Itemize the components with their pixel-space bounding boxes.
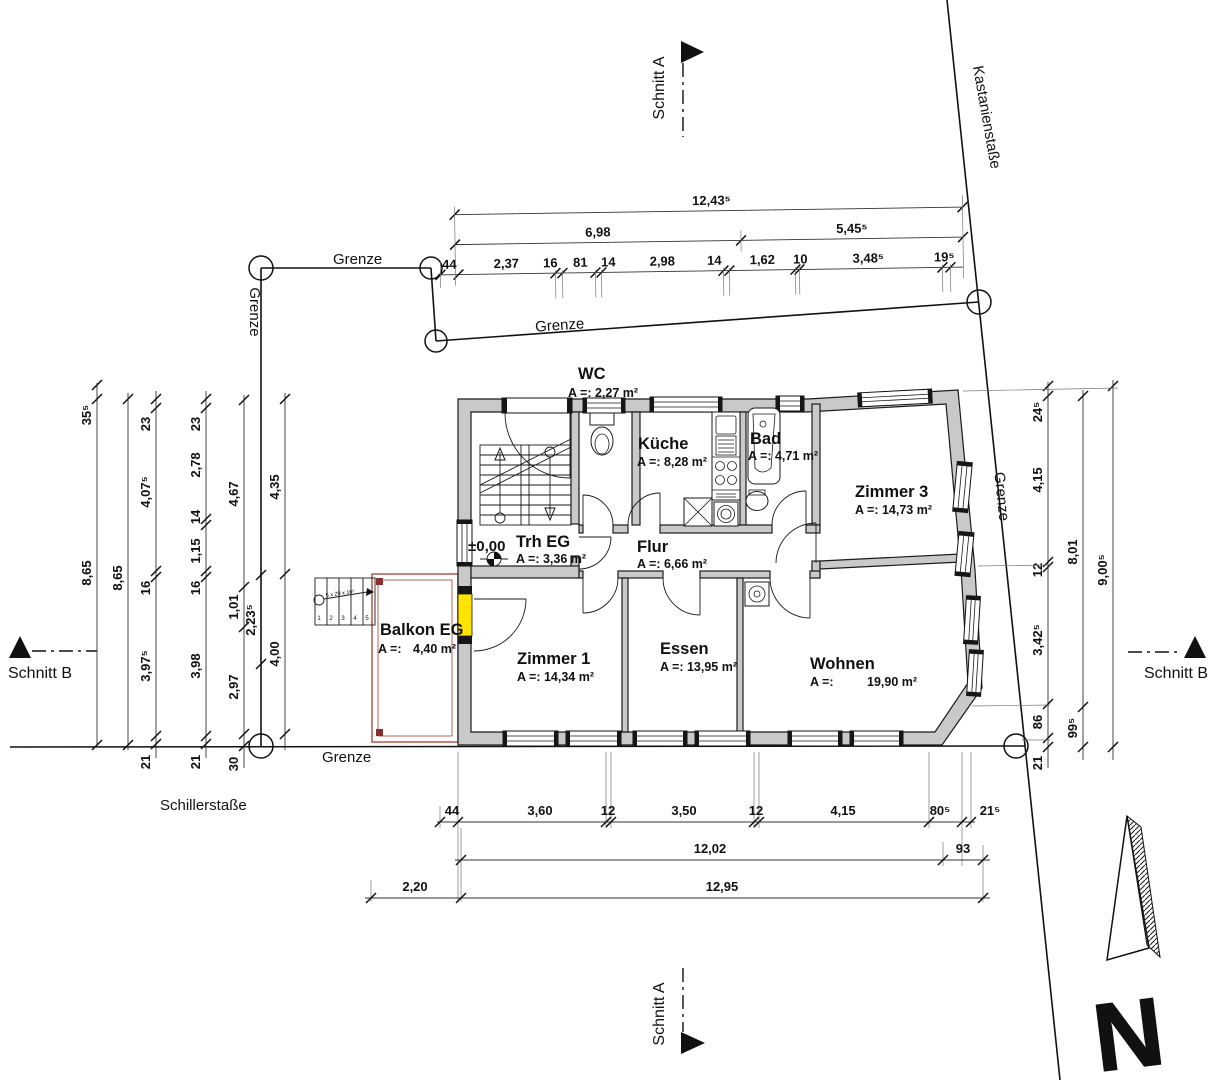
dim-left-c4-1: 4,35 — [267, 474, 282, 499]
dim-top-mid-1: 6,98 — [585, 224, 611, 239]
shaft-box — [684, 498, 712, 526]
washbasin — [746, 490, 768, 511]
exterior-stair: 5 x 29 x 16⁵ 1 2 3 4 5 — [314, 578, 375, 625]
stair-step-3: 3 — [341, 616, 345, 622]
section-a-top-arrow-icon — [681, 41, 704, 63]
window-wc — [583, 398, 625, 413]
section-b-left-arrow-icon — [9, 636, 31, 658]
room-name-bad: Bad — [750, 430, 781, 448]
wall-kueche-bad — [740, 412, 746, 525]
wall-flur-north-4 — [806, 525, 820, 533]
dim-top-total: 12,43⁵ — [692, 193, 731, 209]
section-a-bottom-label: Schnitt A — [651, 982, 668, 1045]
dim-bot-d2: 3,60 — [527, 803, 552, 818]
room-area-flur: A =: 6,66 m² — [637, 557, 707, 571]
section-a-bottom-arrow-icon — [681, 1032, 705, 1054]
door-bad — [772, 491, 806, 525]
room-area-value-wohnen: 19,90 m² — [867, 675, 917, 689]
dim-left-c1-3: 16 — [138, 581, 153, 595]
dim-bot-d3: 12 — [601, 803, 615, 818]
dim-top-d3: 16 — [543, 255, 558, 270]
wall-flur-south-1 — [579, 571, 583, 578]
wall-bad-zimmer3 — [812, 404, 820, 525]
dim-left-grenze-seg: 2,23⁵ — [243, 604, 258, 635]
window-bottom-3 — [633, 731, 687, 746]
dim-right-1: 24⁵ — [1030, 402, 1045, 423]
washing-machine — [714, 502, 738, 526]
dim-left-outer-1: 35⁵ — [79, 405, 94, 426]
wall-flur-north-1 — [579, 525, 583, 533]
dim-top-d10: 3,48⁵ — [852, 250, 884, 265]
dim-top-d2: 2,37 — [494, 256, 520, 271]
stove-fixture-wohnen — [745, 582, 769, 606]
dim-left-c2-7: 21 — [188, 755, 203, 769]
dimension-chains-top: 12,43⁵ 6,98 5,45⁵ 44 2,37 16 81 14 2,98 … — [434, 189, 968, 300]
room-name-zimmer1: Zimmer 1 — [517, 650, 590, 668]
room-area-bad: A =: 4,71 m² — [748, 449, 818, 463]
window-wohnen-right-1 — [964, 596, 981, 645]
room-area-wc: A =: 2,27 m² — [568, 386, 638, 400]
boundary-label-bottom: Grenze — [322, 749, 371, 766]
dim-left-c2-6: 3,98 — [188, 653, 203, 678]
dim-top-mid-2: 5,45⁵ — [836, 221, 868, 236]
wall-zimmer1-essen — [622, 578, 628, 732]
dim-top-d4: 81 — [573, 255, 588, 270]
dim-left-c3-3: 2,97 — [226, 674, 241, 699]
dim-bot-d5: 12 — [749, 803, 763, 818]
wall-vestibule-zimmer1 — [471, 566, 579, 578]
room-area-kueche: A =: 8,28 m² — [637, 455, 707, 469]
room-area-essen: A =: 13,95 m² — [660, 660, 737, 674]
street-name-kastanienstrasse: Kastanienstaße — [969, 64, 1004, 170]
dim-bot-mid-2: 93 — [956, 841, 970, 856]
dimension-chains-left: 35⁵ 8,65 8,65 23 4,07⁵ 16 3,97⁵ 21 23 2,… — [79, 380, 290, 771]
window-wohnen-right-2 — [967, 650, 984, 697]
dim-bot-mid-1: 12,02 — [694, 841, 727, 856]
dim-bot-d4: 3,50 — [671, 803, 696, 818]
dim-right-2: 4,15 — [1030, 467, 1045, 492]
dim-right-4: 3,42⁵ — [1030, 624, 1045, 655]
stair-step-5: 5 — [365, 616, 369, 622]
stair-step-1: 1 — [317, 616, 321, 622]
section-b-right-arrow-icon — [1184, 636, 1206, 658]
dim-bot-d7: 80⁵ — [930, 803, 951, 818]
wall-essen-wohnen — [737, 578, 743, 732]
floor-plan-drawing: Grenze Grenze Grenze Grenze Grenze Kasta… — [0, 0, 1215, 1080]
balcony — [372, 574, 458, 742]
dim-left-c3-2: 1,01 — [226, 594, 241, 619]
balcony-outer-border — [372, 574, 458, 742]
dim-left-c3-4: 30 — [226, 757, 241, 771]
dim-top-d7: 14 — [707, 253, 722, 268]
door-essen — [663, 578, 700, 615]
dim-top-d5: 14 — [601, 254, 616, 269]
room-area-label-wohnen: A =: — [810, 675, 834, 689]
room-name-trh: Trh EG — [516, 533, 570, 551]
wall-flur-south-3 — [700, 571, 770, 578]
window-bottom-5 — [788, 731, 842, 746]
dim-right-6: 21 — [1030, 756, 1045, 770]
floor-plan-page: Grenze Grenze Grenze Grenze Grenze Kasta… — [0, 0, 1215, 1080]
boundary-label-left: Grenze — [246, 287, 263, 336]
dim-bot-total-2: 12,95 — [706, 879, 739, 894]
balcony-corner-2 — [376, 729, 383, 736]
wall-flur-north-2 — [613, 525, 628, 533]
window-bottom-1 — [503, 731, 558, 746]
dim-right-mid-2: 99⁵ — [1065, 718, 1080, 739]
window-bottom-2 — [566, 731, 621, 746]
dim-right-5: 86 — [1030, 715, 1045, 729]
dim-left-c2-4: 1,15 — [188, 538, 203, 563]
dim-top-d1: 44 — [442, 257, 457, 272]
dimension-chains-right: 24⁵ 4,15 12 3,42⁵ 86 21 8,01 99⁵ 9,00⁵ — [963, 380, 1118, 770]
balcony-hatch — [378, 580, 452, 736]
stair-step-4: 4 — [353, 616, 357, 622]
section-a-top-label: Schnitt A — [651, 56, 668, 119]
dim-left-c1-4: 3,97⁵ — [138, 650, 153, 681]
window-bottom-4 — [695, 731, 750, 746]
dim-right-mid-1: 8,01 — [1065, 539, 1080, 564]
section-b-left-label: Schnitt B — [8, 665, 72, 682]
dim-top-d11: 19⁵ — [934, 249, 955, 264]
dimension-chains-bottom: 44 3,60 12 3,50 12 4,15 80⁵ 21⁵ 12,02 93… — [365, 752, 1000, 903]
dim-left-total: 8,65 — [110, 565, 125, 590]
north-arrow: N — [1088, 816, 1170, 1080]
dim-right-total: 9,00⁵ — [1095, 554, 1110, 585]
dim-left-c3-1: 4,67 — [226, 481, 241, 506]
entry-door-opening — [502, 398, 572, 478]
dim-left-c1-2: 4,07⁵ — [138, 476, 153, 507]
dim-top-d9: 10 — [793, 251, 808, 266]
dim-left-c2-3: 14 — [188, 509, 203, 524]
room-name-flur: Flur — [637, 538, 669, 556]
room-name-wohnen: Wohnen — [810, 655, 875, 673]
dim-left-c2-5: 16 — [188, 581, 203, 595]
balcony-corner-1 — [376, 578, 383, 585]
level-value: ±0,00 — [468, 538, 505, 555]
room-area-label-balkon: A =: — [378, 642, 402, 656]
dim-bot-total-1: 2,20 — [402, 879, 427, 894]
room-name-essen: Essen — [660, 640, 709, 658]
dim-left-outer-2: 8,65 — [79, 560, 94, 585]
window-bottom-6 — [850, 731, 903, 746]
door-wc — [583, 495, 613, 525]
stair-step-2: 2 — [329, 616, 333, 622]
window-kueche — [650, 397, 722, 412]
wall-flur-south-2 — [618, 571, 663, 578]
door-zimmer1 — [583, 578, 618, 613]
room-name-balkon: Balkon EG — [380, 621, 463, 639]
window-bad — [776, 396, 804, 411]
door-wohnen — [770, 578, 810, 618]
dim-bot-d6: 4,15 — [830, 803, 855, 818]
dim-left-c1-1: 23 — [138, 417, 153, 431]
dim-bot-d1: 44 — [445, 803, 460, 818]
section-b-right-label: Schnitt B — [1144, 665, 1208, 682]
boundary-label-top: Grenze — [333, 251, 382, 268]
dim-bot-d8: 21⁵ — [980, 803, 1001, 818]
boundary-line-middle — [436, 302, 979, 341]
room-area-trh: A =: 3,36 m² — [516, 552, 586, 566]
room-name-kueche: Küche — [638, 435, 688, 453]
staircase — [480, 439, 571, 525]
room-name-wc: WC — [578, 365, 606, 383]
room-area-value-balkon: 4,40 m² — [413, 642, 456, 656]
north-letter: N — [1088, 978, 1170, 1080]
balcony-door — [458, 586, 526, 651]
dim-left-c4-2: 4,00 — [267, 641, 282, 666]
wall-zimmer3-wohnen — [820, 554, 961, 569]
room-area-zimmer1: A =: 14,34 m² — [517, 670, 594, 684]
room-area-zimmer3: A =: 14,73 m² — [855, 503, 932, 517]
wall-trh-wc — [571, 412, 579, 524]
kitchen-unit — [712, 412, 740, 500]
room-name-zimmer3: Zimmer 3 — [855, 483, 928, 501]
balcony-door-swing — [474, 599, 526, 651]
toilet — [590, 413, 614, 455]
dim-left-c2-2: 2,78 — [188, 452, 203, 477]
street-name-schillerstrasse: Schillerstaße — [160, 797, 247, 814]
dim-top-d8: 1,62 — [750, 252, 776, 267]
boundary-label-right: Grenze — [990, 471, 1012, 522]
wall-flur-south-4 — [810, 571, 820, 578]
dim-left-c2-1: 23 — [188, 417, 203, 431]
dim-left-c1-5: 21 — [138, 755, 153, 769]
dim-top-d6: 2,98 — [650, 253, 676, 268]
boundary-label-middle: Grenze — [535, 315, 585, 335]
